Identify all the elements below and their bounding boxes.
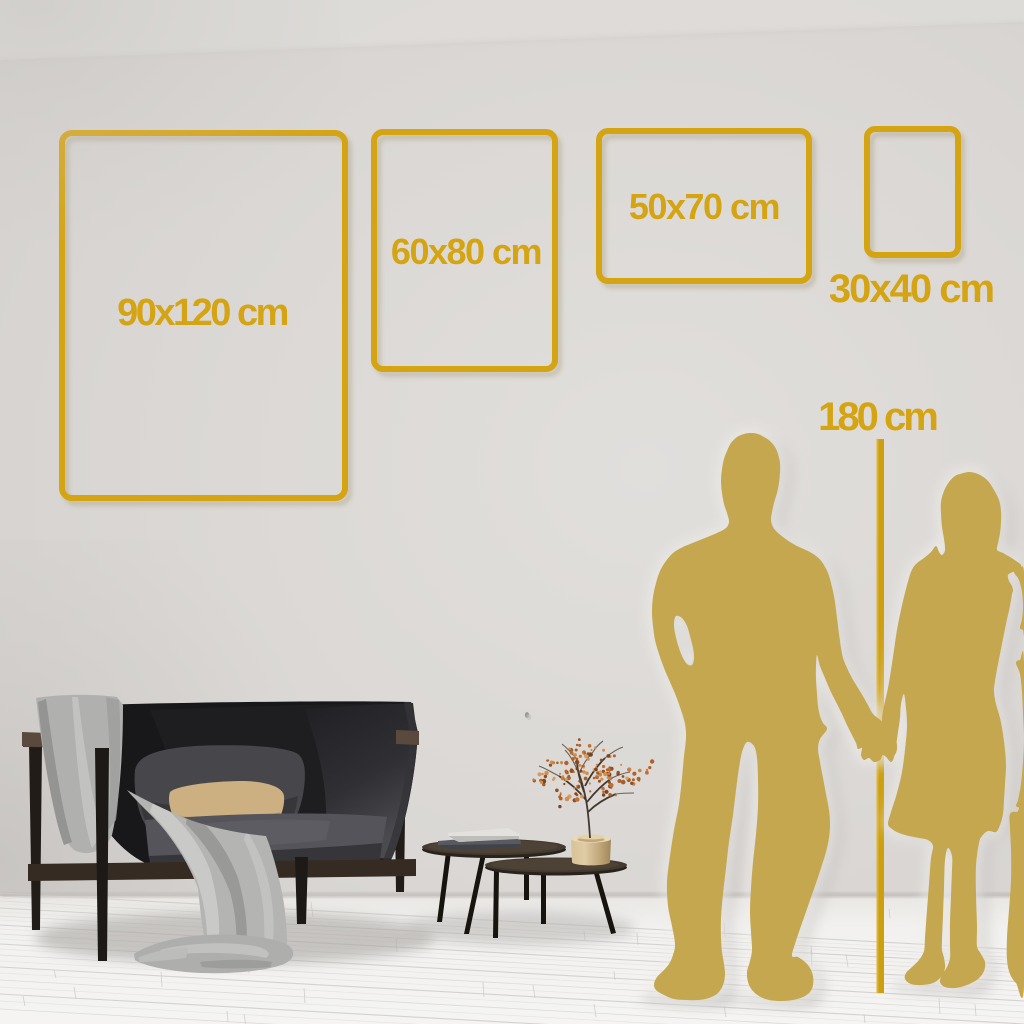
svg-text:180 cm: 180 cm	[818, 395, 937, 439]
svg-text:90x120 cm: 90x120 cm	[117, 292, 287, 334]
svg-text:30x40 cm: 30x40 cm	[829, 267, 994, 311]
svg-text:50x70 cm: 50x70 cm	[629, 186, 779, 227]
svg-text:60x80 cm: 60x80 cm	[391, 231, 541, 272]
